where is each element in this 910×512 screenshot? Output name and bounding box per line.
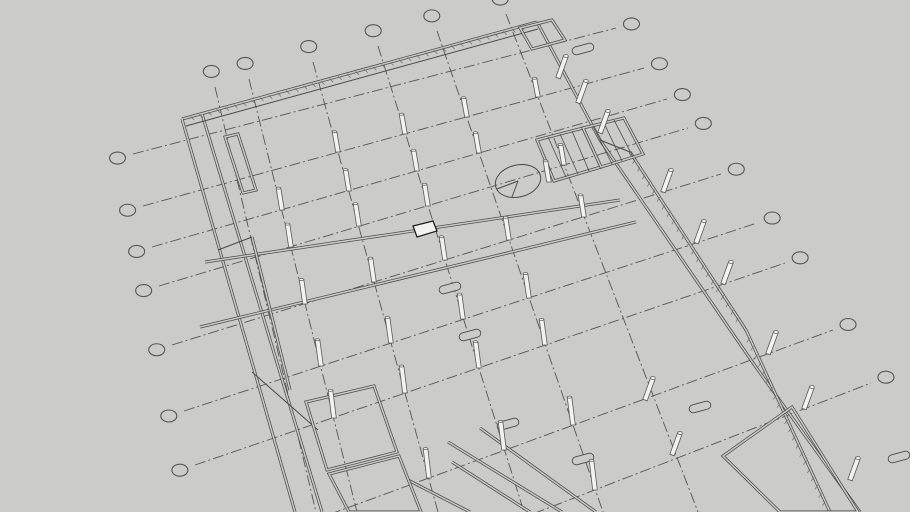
grid-bubble: [674, 89, 690, 101]
grid-bubble: [728, 163, 744, 175]
column-cap: [423, 448, 428, 450]
grid-bubble: [203, 65, 219, 77]
column-cap: [385, 316, 390, 318]
column-cap: [589, 459, 594, 461]
column-cap: [368, 257, 373, 259]
column-cap: [343, 169, 348, 171]
grid-bubble: [365, 25, 381, 37]
edge-column-cap: [856, 456, 860, 459]
edge-column-cap: [564, 54, 568, 57]
column-cap: [285, 223, 290, 225]
grid-bubble: [424, 10, 440, 22]
grid-bubble: [161, 410, 177, 422]
column-cap: [315, 339, 320, 341]
grid-bubble: [792, 252, 808, 264]
column-cap: [567, 396, 572, 398]
column-cap: [439, 236, 444, 238]
edge-column-cap: [669, 168, 673, 171]
edge-column-cap: [774, 330, 778, 333]
grid-bubble: [840, 318, 856, 330]
column-cap: [523, 273, 528, 275]
column-cap: [503, 216, 508, 218]
grid-bubble: [764, 212, 780, 224]
column-cap: [473, 132, 478, 134]
grid-bubble: [172, 464, 188, 476]
grid-bubble: [651, 58, 667, 70]
edge-column-cap: [584, 79, 588, 82]
grid-bubble: [120, 204, 136, 216]
grid-bubble: [237, 57, 253, 69]
grid-bubble: [149, 344, 165, 356]
model-viewport-wrap: [0, 0, 910, 512]
column-cap: [276, 187, 281, 189]
edge-column-cap: [702, 219, 706, 222]
column-cap: [422, 183, 427, 185]
edge-column-cap: [678, 431, 682, 434]
edge-column-cap: [810, 385, 814, 388]
column-cap: [539, 318, 544, 320]
column-cap: [328, 389, 333, 391]
column-cap: [532, 77, 537, 79]
grid-bubble: [136, 285, 152, 297]
column-cap: [299, 278, 304, 280]
column-cap: [411, 149, 416, 151]
grid-bubble: [301, 41, 317, 53]
edge-column-cap: [651, 376, 655, 379]
grid-bubble: [623, 18, 639, 30]
grid-bubble: [695, 117, 711, 129]
column-cap: [399, 365, 404, 367]
grid-bubble: [110, 152, 126, 164]
column-cap: [543, 160, 548, 162]
grid-bubble: [129, 245, 145, 257]
column-cap: [457, 293, 462, 295]
grid-bubble: [878, 371, 894, 383]
column-cap: [498, 420, 503, 422]
column-cap: [473, 341, 478, 343]
edge-column-cap: [606, 109, 610, 112]
column-cap: [332, 131, 337, 133]
column-cap: [558, 143, 563, 145]
column-cap: [399, 113, 404, 115]
column-cap: [353, 203, 358, 205]
column-cap: [461, 97, 466, 99]
model-viewport[interactable]: [0, 0, 910, 512]
edge-column-cap: [729, 260, 733, 263]
column-cap: [578, 194, 583, 196]
